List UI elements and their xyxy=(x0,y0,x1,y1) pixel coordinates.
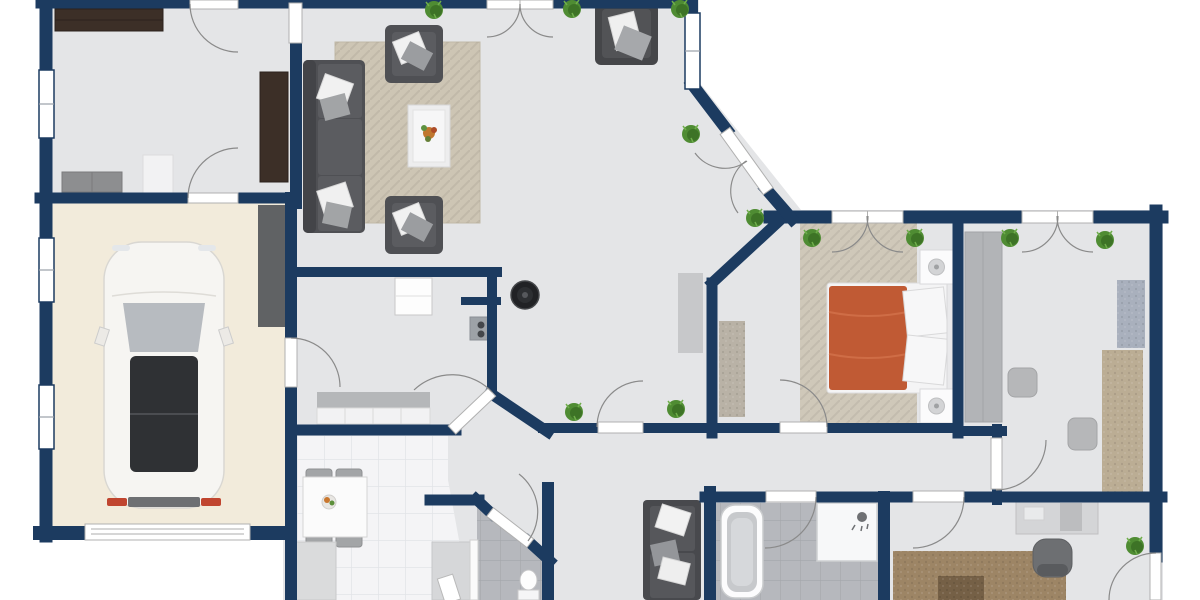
car xyxy=(95,242,234,508)
nightstand xyxy=(920,389,953,423)
living-sofa xyxy=(303,60,365,233)
ottoman xyxy=(1068,418,1097,450)
plant xyxy=(1001,229,1019,247)
right-room-rug-shag xyxy=(1102,350,1143,493)
coffee-table xyxy=(408,105,450,167)
plant xyxy=(563,0,581,18)
plant xyxy=(803,229,821,247)
shower xyxy=(817,503,877,561)
study-sideboard xyxy=(55,9,163,31)
door-threshold xyxy=(780,422,827,433)
plant xyxy=(565,403,583,421)
armchair xyxy=(595,3,658,65)
dining-table xyxy=(303,477,367,537)
plant xyxy=(1096,231,1114,249)
floorplan-canvas xyxy=(0,0,1200,600)
plant xyxy=(682,125,700,143)
hall-mat xyxy=(678,273,703,353)
bathtub xyxy=(721,505,763,598)
door-threshold xyxy=(190,0,238,9)
bed xyxy=(827,281,956,394)
garage-shelf xyxy=(258,205,288,327)
kitchen-appliance xyxy=(294,542,336,600)
window xyxy=(685,13,700,89)
utility-counter xyxy=(317,392,430,424)
wardrobe xyxy=(965,232,1002,422)
study-mat xyxy=(143,155,173,193)
door-threshold xyxy=(285,338,297,387)
bedroom-runner xyxy=(719,321,745,417)
window xyxy=(39,385,54,449)
door-threshold xyxy=(766,491,816,502)
garage-door xyxy=(85,524,250,540)
window xyxy=(39,238,54,302)
plant xyxy=(667,400,685,418)
study-dresser xyxy=(62,172,122,192)
door-threshold xyxy=(991,438,1002,489)
wood-stove xyxy=(511,281,539,309)
floorplan-svg xyxy=(0,0,1200,600)
office-desk xyxy=(1016,500,1098,534)
ottoman xyxy=(1008,368,1037,397)
nightstand xyxy=(920,250,953,284)
plant xyxy=(1126,537,1144,555)
armchair xyxy=(385,25,443,83)
door-threshold xyxy=(913,491,964,502)
plant xyxy=(746,209,764,227)
bath-partition xyxy=(470,540,478,600)
window xyxy=(39,70,54,138)
door-threshold xyxy=(289,3,302,43)
hall-sofa xyxy=(643,500,701,600)
plant xyxy=(425,1,443,19)
office-chair xyxy=(1033,539,1072,577)
door-threshold xyxy=(1150,553,1161,600)
utility-cabinet xyxy=(395,278,432,315)
study-desk xyxy=(260,72,288,182)
plant xyxy=(906,229,924,247)
armchair xyxy=(385,196,443,254)
door-threshold xyxy=(188,193,238,203)
right-room-rug-blue xyxy=(1117,280,1145,348)
door-threshold xyxy=(598,422,643,433)
toilet xyxy=(518,570,539,600)
plant xyxy=(671,0,689,18)
